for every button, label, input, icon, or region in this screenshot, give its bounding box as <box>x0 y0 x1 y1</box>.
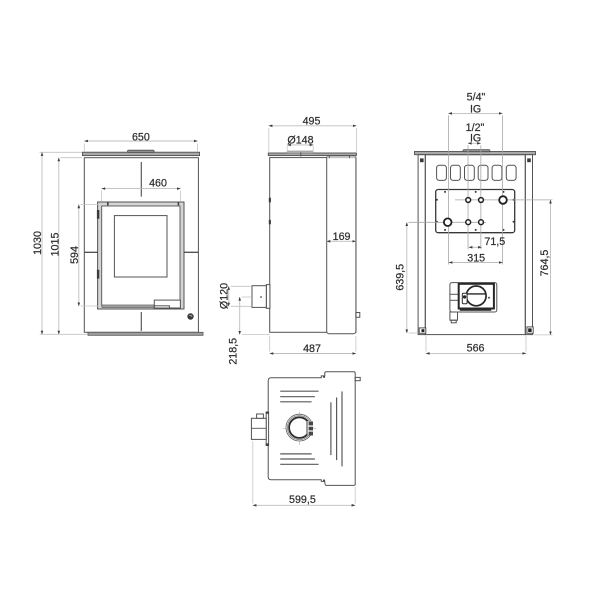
svg-text:IG: IG <box>470 133 481 145</box>
svg-text:650: 650 <box>132 132 150 144</box>
svg-text:218,5: 218,5 <box>228 338 240 365</box>
svg-text:Ø120: Ø120 <box>218 283 230 309</box>
svg-text:1030: 1030 <box>32 231 44 255</box>
svg-text:Ø148: Ø148 <box>287 134 313 146</box>
svg-text:169: 169 <box>333 231 351 243</box>
svg-text:5/4": 5/4" <box>467 91 486 103</box>
svg-text:639,5: 639,5 <box>395 264 407 291</box>
svg-text:566: 566 <box>467 342 485 354</box>
svg-text:495: 495 <box>303 115 321 127</box>
svg-text:71,5: 71,5 <box>484 236 505 248</box>
svg-text:487: 487 <box>303 343 321 355</box>
svg-text:764,5: 764,5 <box>539 250 551 277</box>
svg-text:315: 315 <box>467 252 485 264</box>
svg-text:460: 460 <box>149 178 167 190</box>
svg-text:IG: IG <box>470 103 481 115</box>
svg-text:594: 594 <box>69 246 81 264</box>
svg-text:1015: 1015 <box>50 233 62 257</box>
svg-text:599,5: 599,5 <box>289 494 316 506</box>
